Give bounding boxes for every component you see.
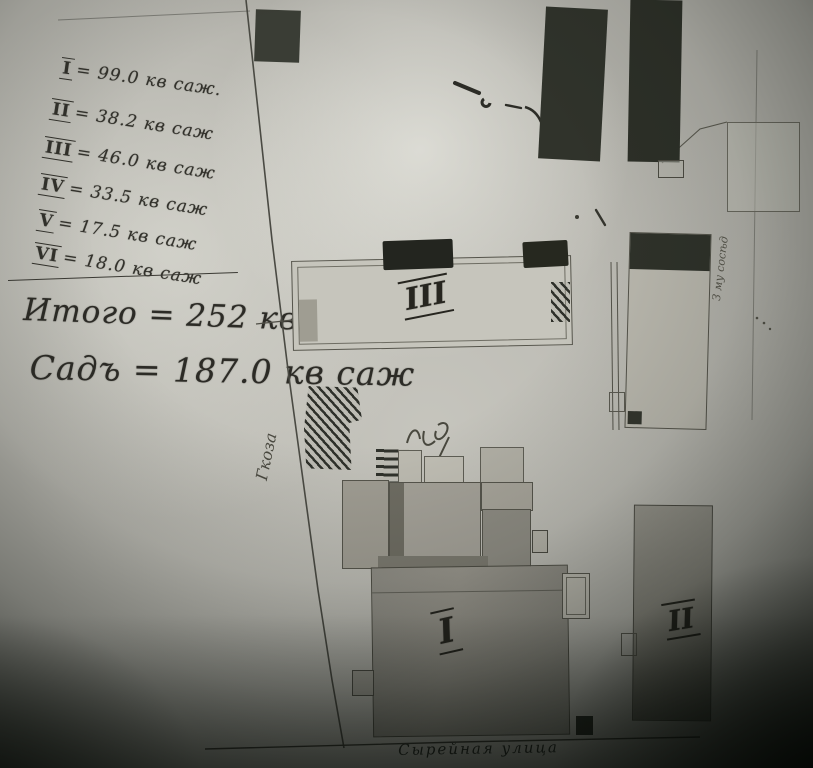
left-boundary-annotation: Гкоза [252, 431, 281, 482]
building-II-label: II [661, 599, 701, 641]
dark-outbuilding [254, 9, 301, 63]
hatched-shed [551, 282, 570, 322]
building-II-side-square [621, 633, 637, 656]
roman-numeral: VI [32, 242, 62, 268]
area-value: = 18.0 кв саж [62, 248, 204, 290]
right-boundary-annotation: З му сосѣд [710, 236, 731, 302]
roman-numeral: IV [38, 173, 68, 199]
roman-numeral: V [36, 209, 57, 234]
garden-note: Садъ = 187.0 кв саж [29, 348, 415, 394]
dark-building-top-right [628, 0, 683, 162]
cluster-shed [398, 450, 422, 483]
area-note-2: II= 38.2 кв саж [49, 99, 215, 145]
building-III: III [291, 255, 573, 351]
cluster-wing-center [389, 482, 481, 559]
pencil-scribble [482, 99, 490, 106]
cluster-shed [424, 456, 464, 485]
area-value: = 99.0 кв саж. [75, 60, 223, 100]
cluster-dark-band [390, 483, 404, 558]
area-note-3: III= 46.0 кв саж [42, 137, 217, 184]
building-I-wall-line [372, 590, 567, 594]
pencil-dot [769, 328, 771, 330]
pencil-dot [756, 317, 759, 320]
roman-numeral: I [59, 57, 75, 81]
cluster-porch [532, 530, 548, 553]
dark-building-top-left [538, 6, 608, 161]
hatched-building-left [304, 386, 362, 470]
neighbor-building [727, 122, 800, 212]
cluster-shed [480, 447, 524, 485]
building-I-label: I [430, 607, 463, 655]
area-value: = 33.5 кв саж [68, 179, 210, 221]
roman-numeral: II [49, 98, 74, 123]
right-edge-line [752, 50, 757, 420]
building-dark-band [630, 233, 711, 271]
boundary-square [352, 670, 374, 696]
cluster-wing-right-top [481, 482, 533, 511]
pencil-scribble [525, 107, 541, 122]
area-value: = 38.2 кв саж [73, 103, 215, 145]
building-III-left-bay [299, 299, 318, 341]
dark-shed-on-building-III [522, 240, 568, 268]
porch-inner-line [566, 577, 586, 615]
fence-gate-square [609, 392, 625, 412]
building-I-porch [562, 573, 590, 619]
archival-plan-photo: I= 99.0 кв саж. II= 38.2 кв саж III= 46.… [0, 0, 813, 768]
cluster-wing-right [482, 509, 531, 569]
pencil-dot [575, 215, 579, 219]
building-I: I [371, 565, 570, 738]
area-note-1: I= 99.0 кв саж. [59, 58, 223, 100]
building-right-middle [624, 232, 711, 430]
pencil-dot [763, 322, 766, 325]
area-value: = 46.0 кв саж [75, 142, 217, 184]
dark-corner-mark [628, 411, 642, 424]
top-boundary-line [58, 11, 250, 20]
area-value: = 17.5 кв саж [57, 213, 199, 255]
dark-shed-bottom [576, 716, 593, 735]
pencil-mark [596, 210, 605, 225]
small-annex [658, 160, 684, 178]
dark-shed-on-building-III [383, 239, 454, 270]
building-II: II [632, 505, 713, 722]
roman-numeral: III [42, 136, 76, 163]
pencil-scribble [506, 105, 521, 108]
pencil-scribble [455, 83, 479, 93]
street-name: Сырейная улица [398, 738, 559, 759]
